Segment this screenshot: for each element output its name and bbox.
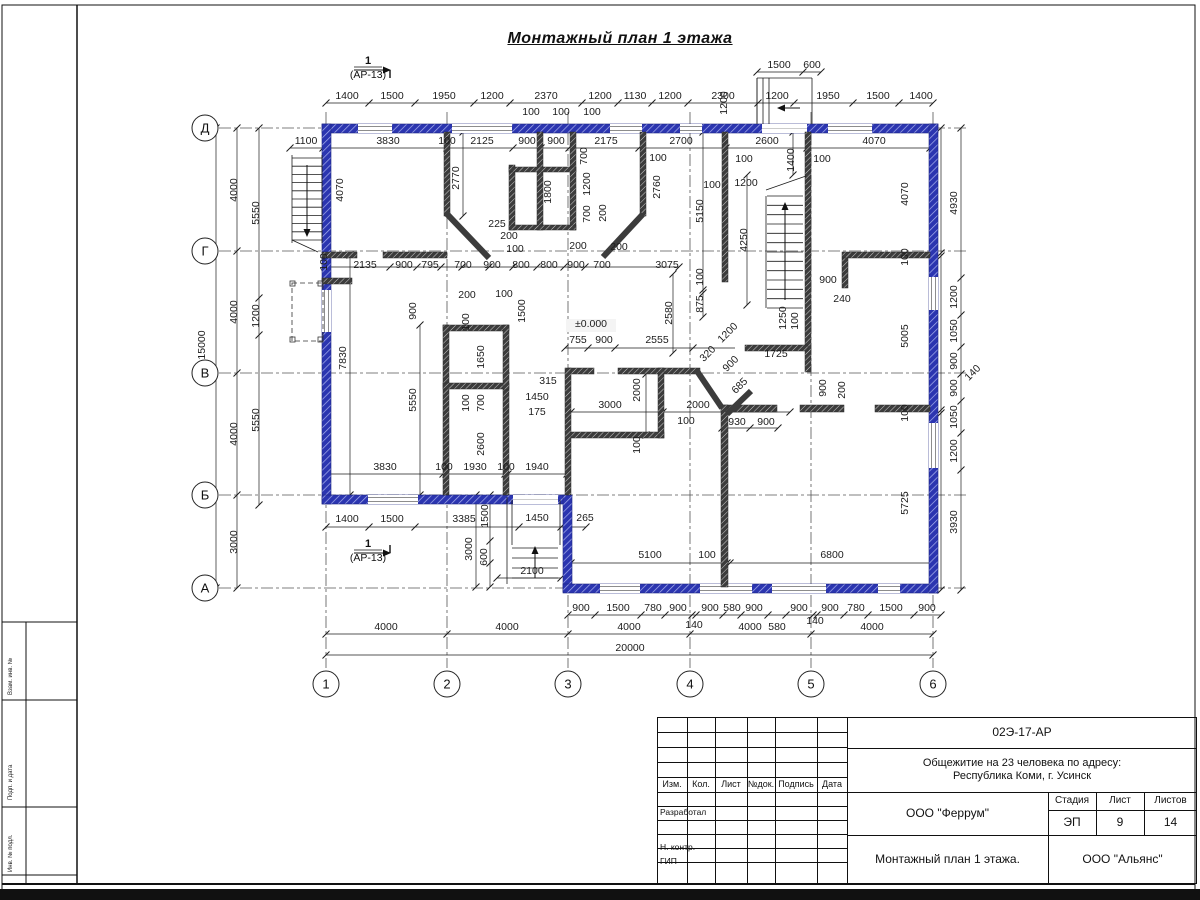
dim-label: 1800 — [542, 180, 554, 204]
dim-label: 1200 — [480, 90, 504, 102]
dim-label: 5550 — [407, 388, 419, 412]
dim-label: 1940 — [525, 461, 549, 473]
dim-label: 800 — [512, 259, 530, 271]
dim-label: 100 — [703, 179, 721, 191]
drawing-title: Монтажный план 1 этажа — [400, 30, 840, 48]
dim-label: 1500 — [380, 90, 404, 102]
stamp-stage-value: ЭП — [1048, 810, 1096, 835]
dim-label: 4000 — [860, 621, 884, 633]
dim-label: 795 — [421, 259, 439, 271]
dim-label: 100 — [677, 415, 695, 427]
dim-label: 1200 — [715, 320, 740, 345]
stamp-col-list: Лист — [715, 777, 747, 792]
dim-label: 100 — [583, 106, 601, 118]
dim-label: 315 — [539, 375, 557, 387]
stamp-col-doc: №док. — [747, 777, 775, 792]
dim-label: 900 — [547, 135, 565, 147]
dim-label: 100 — [735, 153, 753, 165]
dim-label: 4000 — [738, 621, 762, 633]
dim-label: 240 — [833, 293, 851, 305]
dim-label: 1500 — [516, 299, 528, 323]
dim-label: 1725 — [764, 348, 788, 360]
dim-label: 2100 — [520, 565, 544, 577]
stamp-org1: ООО "Феррум" — [847, 792, 1048, 835]
stamp-col-sign: Подпись — [775, 777, 817, 792]
dim-label: 1950 — [432, 90, 456, 102]
dim-label: 200 — [597, 204, 609, 222]
dim-label: 1400 — [785, 148, 797, 172]
dim-label: 800 — [540, 259, 558, 271]
dim-label: 200 — [569, 240, 587, 252]
dim-label: 3830 — [373, 461, 397, 473]
dim-label: 100 — [460, 313, 472, 331]
dimension-labels: 1400150019501200237012001130120023001200… — [196, 55, 983, 654]
dim-label: 3385 — [452, 513, 476, 525]
dim-label: 100 — [694, 268, 706, 286]
dim-label: 100 — [899, 404, 911, 422]
dim-label: 1050 — [948, 405, 960, 429]
stamp-sheet-label: Лист — [1096, 792, 1144, 810]
side-stamp-box3: Инв. № подл. — [8, 835, 14, 872]
dim-label: 1950 — [816, 90, 840, 102]
axis-label: Д — [201, 121, 210, 136]
dim-label: 700 — [475, 394, 487, 412]
section-marker-number: 1 — [365, 55, 371, 67]
dim-label: 700 — [581, 205, 593, 223]
axis-label: 3 — [564, 677, 571, 692]
dim-label: 1500 — [606, 602, 630, 614]
dim-label: 1100 — [295, 135, 318, 147]
dim-label: 1200 — [588, 90, 612, 102]
dim-label: 7830 — [337, 346, 349, 370]
dim-label: 5550 — [250, 408, 262, 432]
dim-label: 1200 — [581, 172, 593, 196]
dim-label: 100 — [789, 312, 801, 330]
stamp-row-developed: Разработал — [657, 806, 687, 820]
dim-label: 2000 — [631, 378, 643, 402]
dim-label: 1250 — [777, 306, 789, 330]
dim-label: 1500 — [479, 504, 491, 528]
dim-label: 20000 — [615, 642, 644, 654]
dim-label: 2770 — [450, 166, 462, 190]
dim-label: 4070 — [334, 178, 346, 202]
dim-label: 100 — [899, 248, 911, 266]
dim-label: 6800 — [820, 549, 844, 561]
axis-label: Б — [201, 488, 210, 503]
axis-label: В — [201, 366, 210, 381]
dim-label: 100 — [649, 152, 667, 164]
dim-label: 900 — [757, 416, 775, 428]
dim-label: 900 — [701, 602, 719, 614]
dim-label: 200 — [836, 381, 848, 399]
dim-label: 175 — [528, 406, 546, 418]
dim-label: 1650 — [475, 345, 487, 369]
dim-label: 15000 — [196, 330, 208, 359]
dim-label: 580 — [768, 621, 786, 633]
stamp-sheets-value: 14 — [1144, 810, 1197, 835]
dim-label: 1200 — [948, 439, 960, 463]
stamp-stage-label: Стадия — [1048, 792, 1096, 810]
dim-label: 3000 — [228, 530, 240, 554]
dim-label: 900 — [567, 259, 585, 271]
dim-label: 5550 — [250, 201, 262, 225]
dim-label: 900 — [819, 274, 837, 286]
dim-label: 3075 — [655, 259, 679, 271]
dim-label: 900 — [817, 379, 829, 397]
dim-label: 100 — [698, 549, 716, 561]
section-marker-ref: (АР-13) — [350, 552, 386, 564]
dim-label: 900 — [395, 259, 413, 271]
dim-label: 1500 — [380, 513, 404, 525]
dim-label: 2370 — [534, 90, 558, 102]
dim-label: 1450 — [525, 512, 549, 524]
dim-label: 1930 — [463, 461, 487, 473]
dim-label: 1400 — [335, 90, 359, 102]
dim-label: 4070 — [899, 182, 911, 206]
dim-label: 600 — [803, 59, 821, 71]
dim-label: 140 — [962, 362, 983, 383]
dim-label: 100 — [506, 243, 524, 255]
dim-label: 900 — [948, 352, 960, 370]
dim-label: 930 — [728, 416, 746, 428]
dim-label: 4000 — [495, 621, 519, 633]
dim-label: 4250 — [738, 228, 750, 252]
dim-label: 755 — [569, 334, 587, 346]
dim-label: 1200 — [765, 90, 789, 102]
dim-label: 900 — [595, 334, 613, 346]
dim-label: 700 — [593, 259, 611, 271]
dim-label: 2600 — [755, 135, 779, 147]
windows — [322, 124, 938, 593]
stamp-project-name: Общежитие на 23 человека по адресу: Респ… — [847, 748, 1197, 792]
dim-label: 1200 — [658, 90, 682, 102]
dim-label: 1130 — [624, 90, 647, 102]
dim-label: 140 — [806, 615, 824, 627]
dim-label: 100 — [438, 135, 456, 147]
dim-label: 1050 — [948, 319, 960, 343]
dim-label: 2125 — [470, 135, 494, 147]
dim-label: 3000 — [463, 537, 475, 561]
dim-label: 200 — [500, 230, 518, 242]
dim-label: 900 — [572, 602, 590, 614]
dim-label: 900 — [669, 602, 687, 614]
stamp-org2: ООО "Альянс" — [1048, 835, 1197, 884]
dim-label: 580 — [723, 602, 741, 614]
dim-label: 4000 — [228, 422, 240, 446]
dim-label: 3830 — [376, 135, 400, 147]
dim-label: 1450 — [525, 391, 549, 403]
dim-label: 200 — [458, 289, 476, 301]
dim-label: 900 — [720, 353, 741, 374]
dim-label: 900 — [407, 302, 419, 320]
dim-label: 2600 — [475, 432, 487, 456]
stamp-sheet-value: 9 — [1096, 810, 1144, 835]
dim-label: 140 — [685, 619, 703, 631]
side-stamp-box1: Взам. инв. № — [8, 658, 14, 695]
stamp-col-date: Дата — [817, 777, 847, 792]
dim-label: 2175 — [594, 135, 618, 147]
dim-label: 2580 — [663, 301, 675, 325]
dim-label: 1500 — [866, 90, 890, 102]
axis-label: 5 — [807, 677, 814, 692]
dim-label: 4930 — [948, 191, 960, 215]
dim-label: 3930 — [948, 510, 960, 534]
dim-label: 1500 — [879, 602, 903, 614]
axis-label: 6 — [929, 677, 936, 692]
dim-label: 100 — [813, 153, 831, 165]
dim-label: 1200 — [734, 177, 758, 189]
dim-label: 900 — [821, 602, 839, 614]
drawing-sheet: { "title": "Монтажный план 1 этажа", "el… — [0, 0, 1200, 900]
axis-label: Г — [201, 244, 208, 259]
dim-label: 2000 — [686, 399, 710, 411]
dim-label: 900 — [948, 379, 960, 397]
dim-label: 780 — [847, 602, 865, 614]
dim-label: 4000 — [617, 621, 641, 633]
dim-label: 100 — [435, 461, 453, 473]
dim-label: 3000 — [598, 399, 622, 411]
dim-label: 100 — [631, 436, 643, 454]
dim-label: 100 — [497, 461, 515, 473]
dim-label: 4000 — [374, 621, 398, 633]
dim-label: 100 — [522, 106, 540, 118]
stamp-doc-number: 02Э-17-АР — [847, 717, 1197, 748]
outer-walls — [322, 124, 938, 593]
dim-label: 1200 — [250, 304, 262, 328]
dim-label: 100 — [460, 394, 472, 412]
dim-label: 225 — [488, 218, 506, 230]
dim-label: 1400 — [335, 513, 359, 525]
dim-label: 4070 — [862, 135, 886, 147]
axis-label: 2 — [443, 677, 450, 692]
dim-label: 780 — [644, 602, 662, 614]
dim-label: 100 — [495, 288, 513, 300]
dim-label: 2135 — [353, 259, 377, 271]
dim-label: 5150 — [694, 199, 706, 223]
dim-label: 900 — [483, 259, 501, 271]
dim-label: 320 — [697, 343, 718, 364]
dim-label: ±0.000 — [575, 318, 607, 330]
dim-label: 1200 — [948, 285, 960, 309]
stamp-col-izm: Изм. — [657, 777, 687, 792]
axis-label: 1 — [322, 677, 329, 692]
dim-label: 5100 — [638, 549, 662, 561]
dim-label: 700 — [454, 259, 472, 271]
dim-label: 900 — [790, 602, 808, 614]
dim-label: 100 — [552, 106, 570, 118]
dim-label: 2555 — [645, 334, 669, 346]
dim-label: 5005 — [899, 324, 911, 348]
inner-walls — [322, 132, 930, 587]
section-marker-number: 1 — [365, 538, 371, 550]
side-stamp-box2: Подп. и дата — [8, 765, 14, 800]
section-marker-ref: (АР-13) — [350, 69, 386, 81]
dim-label: 4000 — [228, 300, 240, 324]
dim-label: 200 — [610, 241, 628, 253]
axis-label: А — [201, 581, 210, 596]
dim-label: 2700 — [669, 135, 693, 147]
dim-label: 1500 — [767, 59, 791, 71]
stamp-drawing-name: Монтажный план 1 этажа. — [847, 835, 1048, 884]
dim-label: 700 — [578, 147, 590, 165]
axis-label: 4 — [686, 677, 693, 692]
dim-label: 900 — [918, 602, 936, 614]
dim-label: 265 — [576, 512, 594, 524]
dim-label: 900 — [745, 602, 763, 614]
dim-label: 875 — [694, 295, 706, 313]
dim-label: 900 — [518, 135, 536, 147]
dim-label: 4000 — [228, 178, 240, 202]
dim-label: 5725 — [899, 491, 911, 515]
dim-label: 100 — [318, 253, 330, 271]
stamp-col-kol: Кол. — [687, 777, 715, 792]
stamp-sheets-label: Листов — [1144, 792, 1197, 810]
dim-label: 1400 — [909, 90, 933, 102]
dim-label: 600 — [478, 548, 490, 566]
dim-label: 1200 — [718, 91, 730, 115]
dim-label: 2760 — [651, 175, 663, 199]
